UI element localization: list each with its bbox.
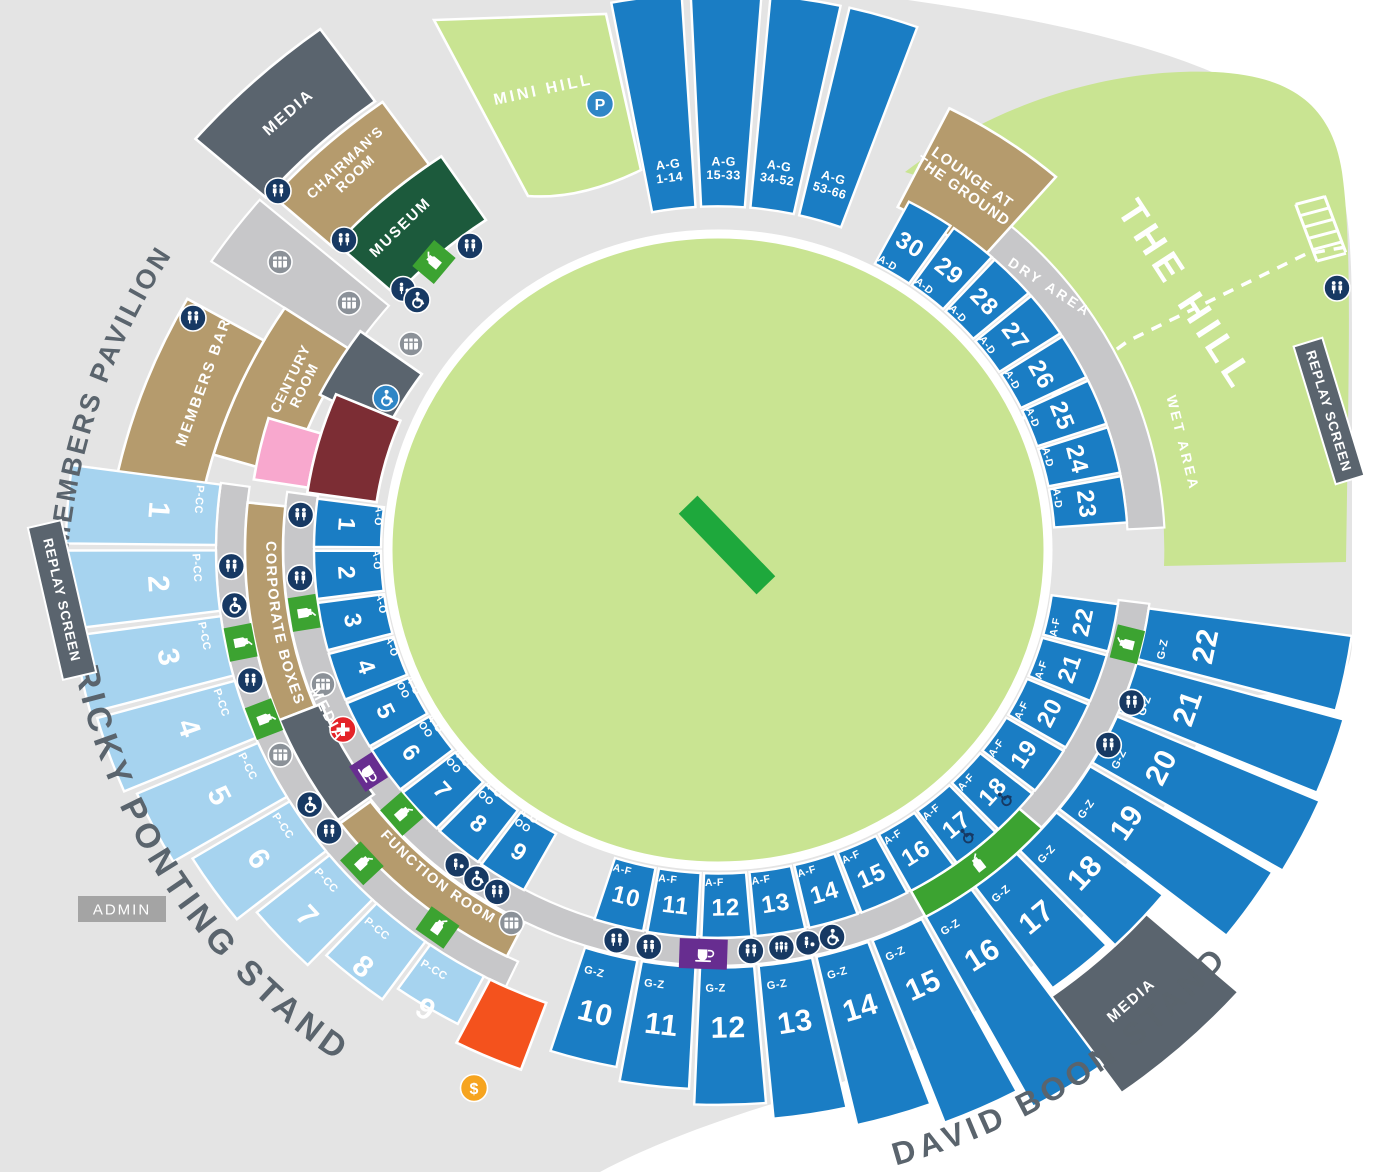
section-number: 22: [1067, 605, 1099, 639]
section-rows: P-CC: [190, 553, 204, 583]
section-number: 11: [661, 891, 691, 921]
wheelchair-icon: [221, 592, 247, 618]
wheelchair-icon: [373, 385, 399, 411]
section-rows: G-Z: [705, 982, 726, 994]
section-number: 11: [643, 1007, 680, 1044]
toilets-icon: [265, 178, 291, 204]
svg-text:$: $: [470, 1081, 479, 1098]
section-rows: A-D: [1050, 488, 1064, 510]
family-toilets-icon: [768, 935, 794, 961]
cafe-icon: [679, 938, 728, 970]
toilets-icon: [316, 818, 342, 844]
toilets-icon: [331, 227, 357, 253]
kiosk-icon: [337, 291, 361, 315]
admin-office: ADMIN: [78, 896, 166, 922]
section-number: 12: [711, 894, 740, 922]
svg-text:P: P: [595, 97, 606, 114]
section-number: 2: [332, 565, 360, 581]
baby-change-icon: [796, 930, 821, 955]
wheelchair-icon: [819, 924, 845, 950]
section-number: 12: [710, 1011, 746, 1045]
toilets-icon: [457, 233, 483, 259]
stadium-seating-map: 1A-O2A-O3A-O4A-O5A-OOO6A-OOO7A-OOO8A-OOO…: [0, 0, 1400, 1172]
section-number: 2: [141, 574, 175, 594]
kiosk-icon: [268, 250, 292, 274]
section-label: A-G1-14: [654, 156, 684, 187]
wheelchair-icon: [404, 287, 430, 313]
kiosk-icon: [499, 911, 523, 935]
section-label: A-G15-33: [706, 154, 741, 182]
admin-text: ADMIN: [93, 901, 151, 918]
section-rows: A-O: [372, 505, 385, 527]
section-number: 13: [760, 888, 793, 919]
toilets-icon: [1119, 689, 1145, 715]
ticket-sales-icon: $: [461, 1075, 488, 1102]
section-number: 23: [1071, 488, 1101, 520]
toilets-icon: [484, 879, 510, 905]
toilets-icon: [180, 305, 206, 331]
section-number: 1: [332, 517, 360, 533]
section-rows: G-Z: [643, 977, 665, 991]
parking-icon: P: [587, 91, 614, 118]
toilets-icon: [1095, 732, 1121, 758]
kiosk-icon: [268, 743, 292, 767]
toilets-icon: [218, 553, 244, 579]
kiosk-icon: [399, 332, 423, 356]
toilets-icon: [604, 927, 630, 953]
stadium-map-page: 1A-O2A-O3A-O4A-O5A-OOO6A-OOO7A-OOO8A-OOO…: [0, 0, 1400, 1172]
toilets-icon: [1324, 275, 1350, 301]
toilets-icon: [636, 934, 662, 960]
toilets-icon: [288, 502, 314, 528]
section-rows: A-O: [370, 549, 383, 570]
toilets-icon: [237, 667, 263, 693]
food-outlet-icon: [288, 594, 321, 632]
toilets-icon: [738, 938, 764, 964]
section-number: 1: [141, 500, 175, 520]
section-rows: A-F: [658, 872, 678, 886]
section-number: 13: [775, 1003, 815, 1041]
toilets-icon: [287, 565, 313, 591]
section-number: 22: [1186, 625, 1225, 666]
section-rows: P-CC: [192, 485, 206, 515]
section-rows: A-F: [705, 877, 724, 889]
wheelchair-icon: [297, 792, 323, 818]
